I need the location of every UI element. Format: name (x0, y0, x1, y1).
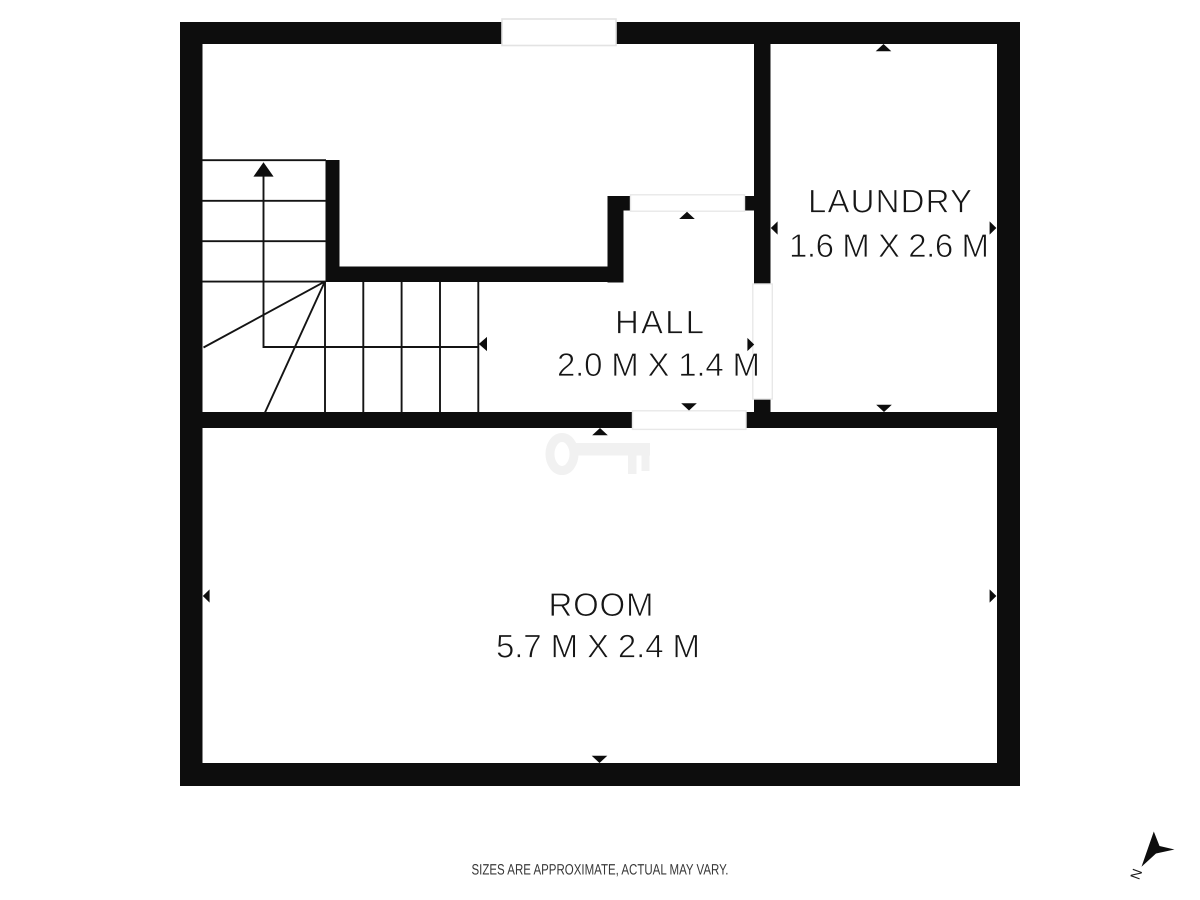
svg-text:2.0 M X 1.4 M: 2.0 M X 1.4 M (557, 346, 760, 383)
svg-text:LAUNDRY: LAUNDRY (808, 183, 972, 220)
svg-text:HALL: HALL (615, 304, 704, 341)
svg-text:5.7 M X 2.4 M: 5.7 M X 2.4 M (496, 628, 700, 665)
svg-text:1.6 M X 2.6 M: 1.6 M X 2.6 M (789, 227, 989, 264)
svg-text:SIZES ARE APPROXIMATE, ACTUAL: SIZES ARE APPROXIMATE, ACTUAL MAY VARY. (472, 862, 729, 879)
svg-text:ROOM: ROOM (549, 586, 654, 623)
